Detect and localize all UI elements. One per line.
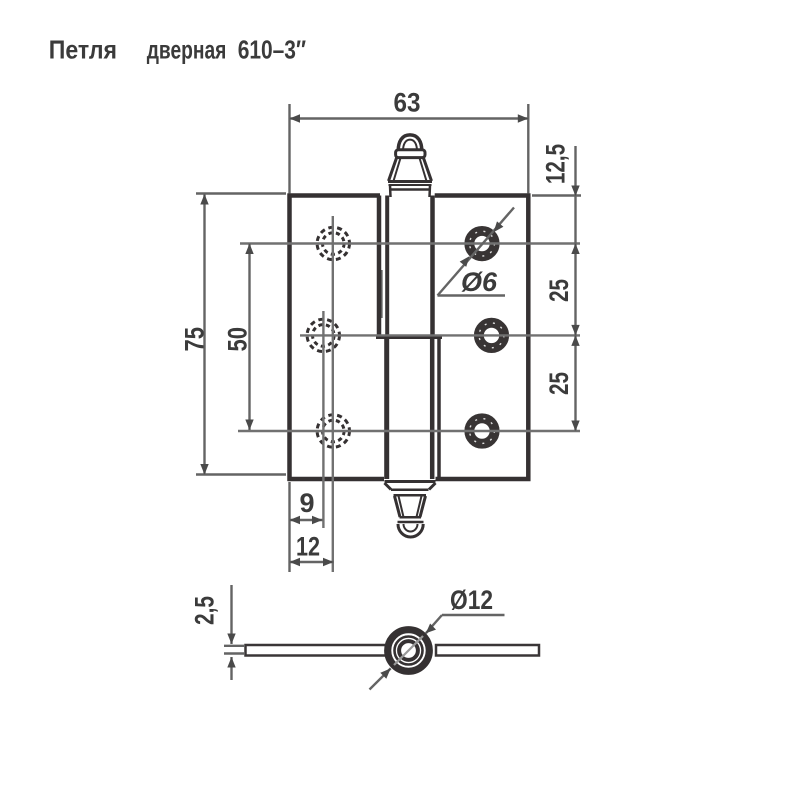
svg-text:Ø12: Ø12 <box>450 585 493 615</box>
svg-text:Ø6: Ø6 <box>461 267 498 297</box>
svg-text:12: 12 <box>296 532 320 562</box>
svg-text:610–3″: 610–3″ <box>238 35 306 65</box>
svg-text:75: 75 <box>180 327 210 352</box>
svg-text:Петля: Петля <box>49 35 117 65</box>
svg-text:50: 50 <box>223 327 253 352</box>
svg-text:дверная: дверная <box>147 35 227 65</box>
svg-text:12,5: 12,5 <box>541 144 571 184</box>
svg-text:25: 25 <box>544 279 574 302</box>
svg-text:9: 9 <box>299 488 314 518</box>
svg-text:2,5: 2,5 <box>190 596 220 625</box>
svg-text:63: 63 <box>394 88 421 118</box>
svg-text:25: 25 <box>544 372 574 395</box>
